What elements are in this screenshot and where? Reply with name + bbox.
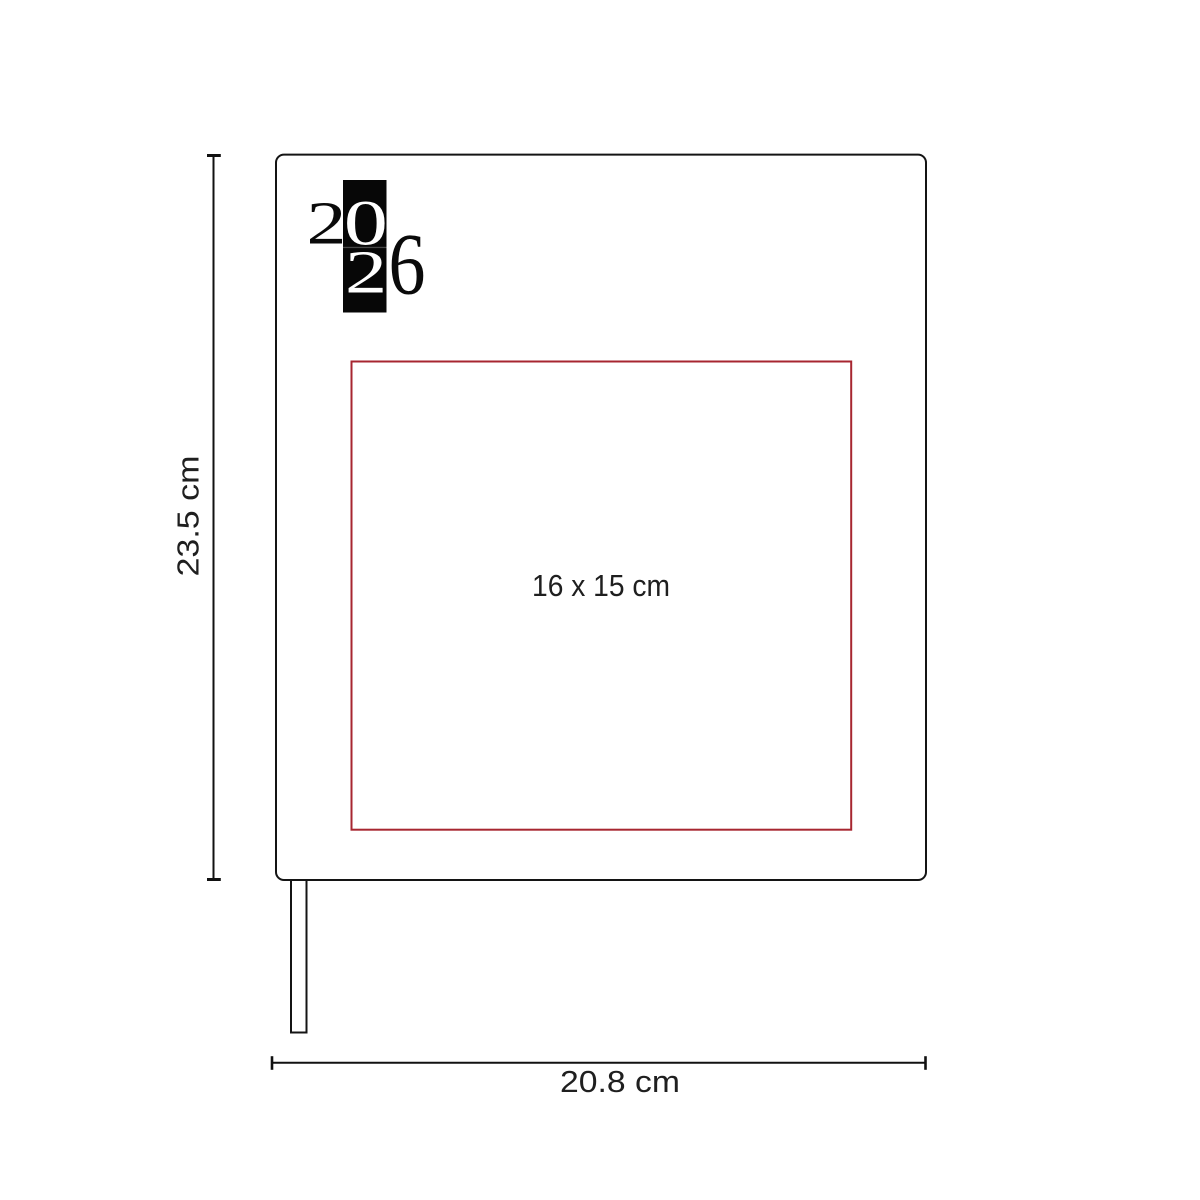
svg-text:2: 2 xyxy=(345,238,387,306)
svg-text:6: 6 xyxy=(389,215,426,312)
svg-text:23.5 cm: 23.5 cm xyxy=(171,456,206,577)
svg-text:16 x 15 cm: 16 x 15 cm xyxy=(532,568,670,603)
svg-text:20.8 cm: 20.8 cm xyxy=(560,1064,680,1099)
svg-text:2: 2 xyxy=(307,190,347,257)
